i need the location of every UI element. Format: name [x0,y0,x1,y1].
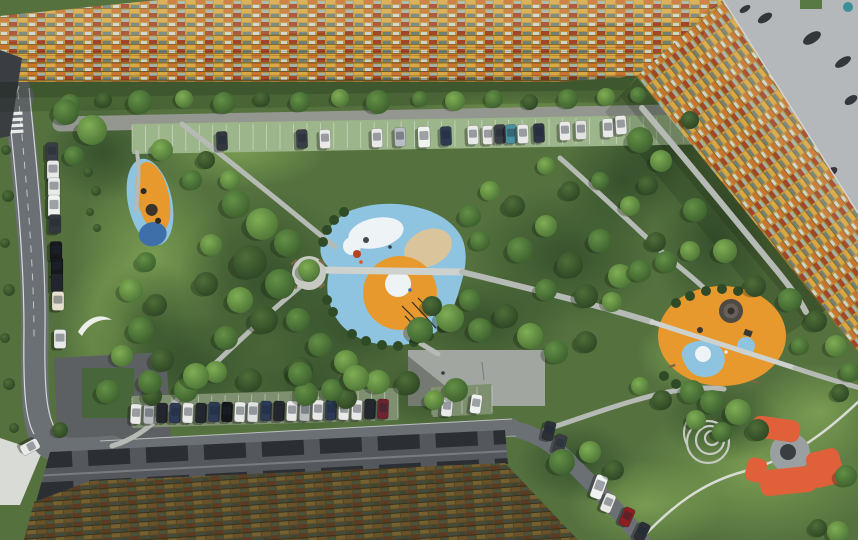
car-glass [50,200,59,209]
person [408,288,412,292]
car-glass [275,405,283,414]
car [437,126,452,147]
tree [96,92,112,108]
bush [2,190,14,202]
car-glass [218,136,226,144]
tree [686,410,706,430]
tree [246,208,278,240]
car-glass [51,219,60,227]
car-glass [396,132,404,140]
tree [214,326,238,350]
tree [517,323,543,349]
orange-circle-center [385,271,411,297]
car-glass [443,401,452,410]
tree [544,340,568,364]
car [166,403,181,425]
car-glass [171,407,179,416]
tree [805,310,827,332]
tree [507,237,533,263]
tree [182,170,202,190]
tree [459,289,481,311]
car-glass [223,406,231,415]
car [257,401,272,423]
car [46,215,61,236]
tree [778,288,802,312]
car [368,128,383,149]
person [441,371,445,375]
tree [725,399,751,425]
tree [630,87,646,103]
hedge-dot [701,286,711,296]
tree [591,172,609,190]
car-glass [321,134,329,142]
car-glass [288,405,296,414]
tree [445,91,465,111]
bush [3,284,15,296]
car [270,401,285,423]
car-glass [48,147,57,155]
car [316,129,331,150]
tree [631,377,649,395]
car-glass [262,405,270,414]
aerial-courtyard-render [0,0,858,540]
car-glass [577,125,585,133]
tree [227,287,253,313]
tree [151,139,173,161]
tree [744,275,766,297]
car-glass [373,133,381,141]
car [572,120,587,141]
car [231,402,246,424]
tree [681,111,699,129]
car [391,127,406,148]
car-glass [56,334,65,342]
car [205,402,220,424]
car [464,125,479,146]
car-glass [298,134,306,142]
tree [422,296,442,316]
tree [683,198,707,222]
tree [183,363,209,389]
tree [835,465,857,487]
east-playground-white-circle [695,346,711,362]
tree [620,196,640,216]
tree [537,157,555,175]
tree [136,252,156,272]
top-facade-floor-lines [0,45,645,82]
tree [213,92,235,114]
play-equipment-dark [363,237,369,243]
hedge-dot [318,237,328,247]
car-glass [366,403,374,412]
tree [522,94,538,110]
bush [86,208,94,216]
tree [407,317,433,343]
car-glass [236,406,244,415]
car [361,399,376,421]
tree [825,335,847,357]
tree [791,337,809,355]
tree [597,88,615,106]
east-play-dome-center [728,308,735,315]
tree [238,368,262,392]
car-glass [353,404,361,413]
bush [91,186,101,196]
tree [128,317,154,343]
bush [93,224,101,232]
car [374,399,389,421]
tree [308,333,332,357]
tree [265,269,295,299]
car [213,131,228,152]
car [49,292,64,313]
tree [175,90,193,108]
bush [83,167,93,177]
bush [3,378,15,390]
car-glass [617,119,626,128]
tree [646,232,666,252]
tree [254,91,270,107]
car [514,124,529,145]
tree [494,304,518,328]
bush [1,145,11,155]
hedge-dot [671,298,681,308]
tree [575,331,597,353]
tree [638,175,658,195]
tree [290,92,310,112]
car-glass [561,126,569,134]
tree [747,419,769,441]
tree [200,234,222,256]
car-glass [472,398,481,407]
tree [468,318,492,342]
tree [145,294,167,316]
car-glass [145,408,153,417]
tree [220,170,240,190]
hedge-dot [361,336,371,346]
tree [298,259,320,281]
car [556,121,571,142]
hedge-dot [659,371,669,381]
car [153,403,168,425]
pool-teal-dot [843,2,853,12]
tree [128,90,152,114]
car-glass [53,278,62,286]
pavement-green-patch [800,0,822,9]
hedge-dot [393,341,403,351]
tree [111,345,133,367]
car-glass [604,123,612,131]
car [51,330,66,351]
car-glass [314,404,322,413]
car-glass [52,246,61,254]
tree [119,278,143,302]
car-glass [507,129,515,137]
tree [629,260,651,282]
car-glass [379,403,387,412]
hedge-dot [347,329,357,339]
tree [650,150,672,172]
tree [194,272,218,296]
tree [138,370,162,394]
hedge-dot [322,295,332,305]
hedge-dot [322,225,332,235]
car [244,402,259,424]
car [179,403,194,425]
tree [579,441,601,463]
car-glass [132,408,140,417]
car-glass [50,182,59,190]
car-glass [197,407,205,416]
car-glass [484,130,492,138]
pavilion-center-hole [780,444,796,460]
tree [222,190,250,218]
car-glass [53,262,62,270]
tree [831,384,849,402]
tree [150,348,174,372]
tree [274,229,302,257]
tree [286,308,310,332]
tree [809,519,827,537]
hedge-dot [329,215,339,225]
promenade-west [318,270,462,272]
tree [331,89,349,107]
car-glass [419,131,428,140]
tree [535,279,557,301]
car [127,404,142,426]
tree [366,370,390,394]
tree [560,181,580,201]
tree [233,245,267,279]
car [218,402,233,424]
person [359,260,363,264]
tree [503,195,525,217]
car-glass [249,406,257,415]
tree [197,151,215,169]
hedge-dot [328,307,338,317]
hedge-dot [377,340,387,350]
tree [655,251,677,273]
car-glass [49,165,58,173]
hedge-dot [685,291,695,301]
tree [535,215,557,237]
tree [680,241,700,261]
bush [9,423,19,433]
tree [288,362,312,386]
car-glass [535,128,543,136]
car [293,129,308,150]
hedge-dot [339,207,349,217]
person [388,245,392,249]
tree [343,365,369,391]
tree [627,127,653,153]
tree [412,91,428,107]
tree [485,90,503,108]
tree [549,449,575,475]
car [192,403,207,425]
scene-svg [0,0,858,540]
car-glass [442,131,450,139]
tree [557,252,583,278]
car-glass [519,129,527,137]
tree [250,306,278,334]
tree [459,205,481,227]
tree [470,231,490,251]
hedge-dot [717,284,727,294]
car [415,126,431,150]
bush [0,333,10,343]
car-glass [54,296,63,304]
tree [574,284,598,308]
tree [712,422,732,442]
tree [604,460,624,480]
tree [366,90,390,114]
car-glass [469,130,477,138]
person [724,350,728,354]
playground-entry-path [136,152,139,210]
tree [588,229,612,253]
east-play-equipment-dot [697,327,703,333]
tree [652,390,672,410]
tree [96,380,120,404]
car-glass [184,407,192,416]
bush [0,238,10,248]
car-glass [210,406,218,415]
car [530,123,545,144]
car [612,115,627,137]
tree [52,422,68,438]
play-equipment-red [353,250,361,258]
tree [558,89,578,109]
tree [77,115,107,145]
tree [700,390,724,414]
tree [53,99,79,125]
car [140,404,155,426]
tree [602,292,622,312]
tree [424,390,444,410]
tree [396,371,420,395]
car-glass [158,407,166,416]
tree [64,146,84,166]
tree [713,239,737,263]
car [599,118,614,139]
hedge-dot [671,379,681,389]
tree [480,181,500,201]
tree [444,378,468,402]
